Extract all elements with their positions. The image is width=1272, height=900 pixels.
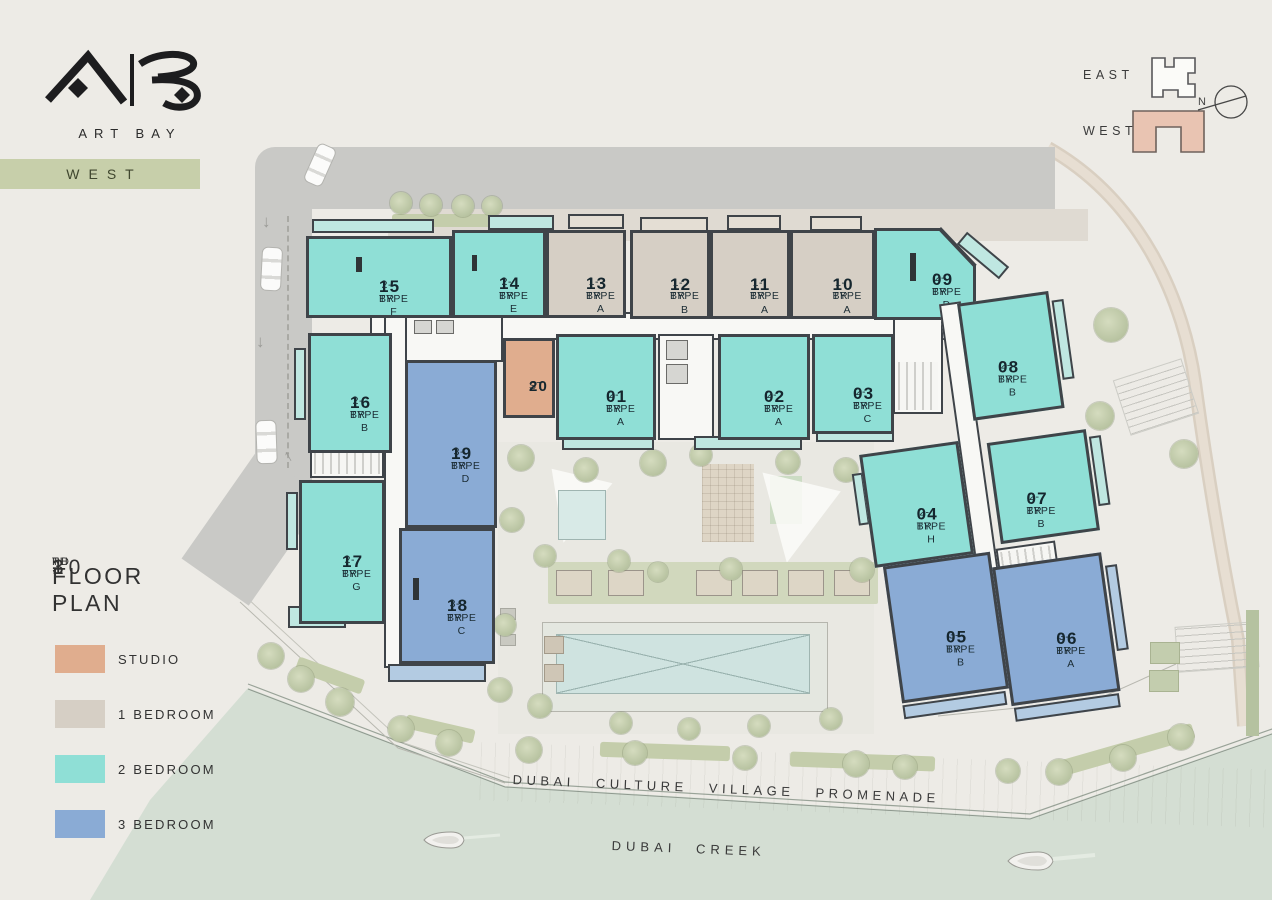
swimming-pool: [556, 634, 810, 694]
west-badge: WEST: [0, 159, 200, 189]
legend-label: 2 BEDROOM: [118, 762, 216, 777]
unit-06[interactable]: 06 3-BRTYPE A: [992, 552, 1120, 706]
palm-tree-icon: [436, 730, 462, 756]
road: [255, 147, 1055, 209]
unit-07[interactable]: 07 2-BRTYPE B: [987, 429, 1100, 544]
unit-16[interactable]: 16 2-BRTYPE B: [308, 333, 392, 453]
unit-17[interactable]: 17 2-BRTYPE G: [299, 480, 385, 624]
door-marker: [413, 578, 419, 600]
door-marker: [472, 255, 477, 271]
unit-20[interactable]: 20 ST: [503, 338, 555, 418]
road-arrow-icon: ↓: [262, 212, 271, 232]
minimap-east-label: EAST: [1083, 68, 1134, 82]
unit-02[interactable]: 02 2-BRTYPE A: [718, 334, 810, 440]
unit-11[interactable]: 11 1-BRTYPE A: [710, 230, 790, 319]
legend-label: 3 BEDROOM: [118, 817, 216, 832]
palm-tree-icon: [893, 755, 917, 779]
tree-icon: [508, 445, 534, 471]
balcony: [388, 664, 486, 682]
legend-item-2-bedroom: 2 BEDROOM: [55, 755, 315, 785]
palm-tree-icon: [733, 746, 757, 770]
legend-label: STUDIO: [118, 652, 180, 667]
tree-icon: [494, 614, 516, 636]
legend-item-1-bedroom: 1 BEDROOM: [55, 700, 315, 730]
balcony: [727, 215, 781, 230]
legend-swatch-2br: [55, 755, 105, 783]
palm-tree-icon: [623, 741, 647, 765]
paved-plaza: [702, 464, 754, 542]
hedge: [1149, 670, 1179, 692]
unit-04[interactable]: 04 2-BRTYPE H: [859, 441, 974, 568]
legend-item-studio: STUDIO: [55, 645, 315, 675]
unit-13[interactable]: 13 1-BRTYPE A: [546, 230, 626, 318]
legend-swatch-3br: [55, 810, 105, 838]
palm-tree-icon: [1046, 759, 1072, 785]
cabana: [556, 570, 592, 596]
stairs-icon: [314, 452, 380, 474]
balcony: [488, 215, 554, 230]
pool-cabana: [544, 664, 564, 682]
unit-01[interactable]: 01 2-BRTYPE A: [556, 334, 656, 440]
tree-icon: [720, 558, 742, 580]
plan-subtitle: FLOOR PLAN: [52, 563, 144, 617]
tree-icon: [850, 558, 874, 582]
east-building-icon: [1152, 58, 1195, 97]
tree-icon: [488, 678, 512, 702]
tree-icon: [534, 545, 556, 567]
unit-14[interactable]: 14 2-BRTYPE E: [452, 230, 546, 318]
tree-icon: [500, 508, 524, 532]
elevator-icon: [666, 364, 688, 384]
unit-12[interactable]: 12 1-BRTYPE B: [630, 230, 710, 319]
brand-name: ART BAY: [40, 126, 220, 141]
tree-icon: [648, 562, 668, 582]
tree-icon: [608, 550, 630, 572]
west-building-icon: [1133, 111, 1204, 152]
tree-icon: [452, 195, 474, 217]
car-icon: [260, 246, 283, 291]
tree-icon: [640, 450, 666, 476]
water-feature: [558, 490, 606, 540]
door-marker: [910, 253, 916, 281]
tree-icon: [420, 194, 442, 216]
art-bay-logo: [40, 50, 220, 128]
cabana: [608, 570, 644, 596]
tree-icon: [678, 718, 700, 740]
legend-swatch-studio: [55, 645, 105, 673]
tree-icon: [482, 196, 502, 216]
legend-swatch-1br: [55, 700, 105, 728]
palm-tree-icon: [843, 751, 869, 777]
floor-plan-page: ART BAY WEST EAST WEST N 3RD - 10TH FLOO…: [0, 0, 1272, 900]
legend-label: 1 BEDROOM: [118, 707, 216, 722]
tree-icon: [1170, 440, 1198, 468]
palm-tree-icon: [326, 688, 354, 716]
door-marker: [356, 257, 362, 272]
hedge: [1150, 642, 1180, 664]
tree-icon: [748, 715, 770, 737]
balcony: [810, 216, 862, 231]
hedge: [1246, 610, 1259, 736]
balcony: [568, 214, 624, 229]
balcony: [312, 219, 434, 233]
palm-tree-icon: [388, 716, 414, 742]
tree-icon: [528, 694, 552, 718]
unit-19[interactable]: 19 3-BRTYPE D: [405, 360, 497, 528]
car-icon: [255, 420, 278, 465]
service-room: [414, 320, 432, 334]
road-arrow-icon: ↓: [256, 332, 265, 352]
cabana: [788, 570, 824, 596]
road-center-line: [287, 216, 289, 468]
compass-north-label: N: [1198, 96, 1206, 108]
unit-08[interactable]: 08 2-BRTYPE B: [957, 291, 1065, 421]
palm-tree-icon: [516, 737, 542, 763]
tree-icon: [820, 708, 842, 730]
elevator-icon: [666, 340, 688, 360]
pool-cabana: [544, 636, 564, 654]
palm-tree-icon: [1168, 724, 1194, 750]
legend-item-3-bedroom: 3 BEDROOM: [55, 810, 315, 840]
balcony: [294, 348, 306, 420]
tree-icon: [574, 458, 598, 482]
tree-icon: [776, 450, 800, 474]
minimap-west-label: WEST: [1083, 124, 1137, 138]
tree-icon: [610, 712, 632, 734]
unit-05[interactable]: 05 3-BRTYPE B: [883, 552, 1009, 704]
palm-tree-icon: [1110, 745, 1136, 771]
unit-15[interactable]: 15 2-BRTYPE F: [306, 236, 452, 318]
palm-tree-icon: [996, 759, 1020, 783]
service-room: [436, 320, 454, 334]
tree-icon: [390, 192, 412, 214]
cabana: [742, 570, 778, 596]
balcony: [286, 492, 298, 550]
